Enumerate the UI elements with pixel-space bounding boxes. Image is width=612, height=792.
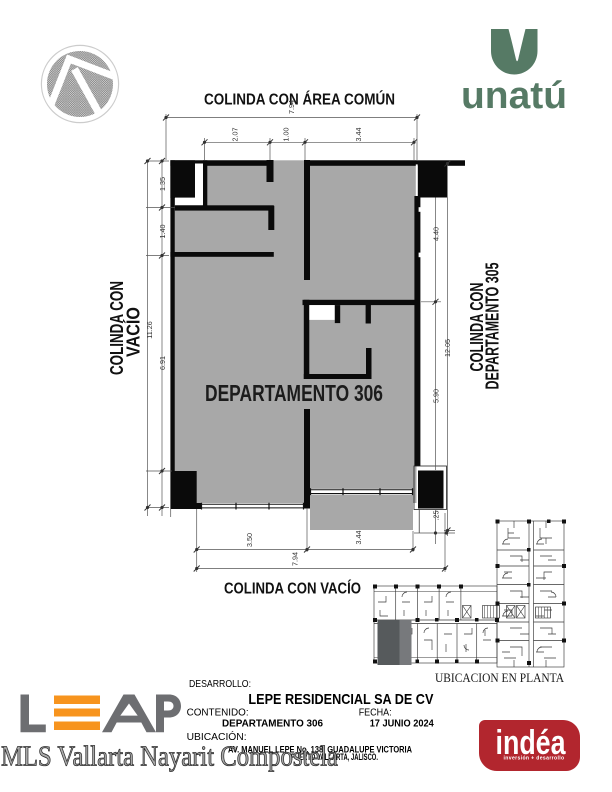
svg-text:CONTENIDO:: CONTENIDO: <box>187 708 249 719</box>
svg-text:6.91: 6.91 <box>158 356 167 370</box>
svg-text:2.07: 2.07 <box>231 128 240 142</box>
svg-text:4.40: 4.40 <box>432 227 441 241</box>
svg-text:MLS Vallarta Nayarit Compostel: MLS Vallarta Nayarit Compostela <box>1 741 338 773</box>
svg-text:7.94: 7.94 <box>291 552 300 566</box>
svg-text:1.40: 1.40 <box>158 225 167 239</box>
svg-text:DEPARTAMENTO 305: DEPARTAMENTO 305 <box>482 263 503 390</box>
svg-text:DEPARTAMENTO 306: DEPARTAMENTO 306 <box>222 719 323 730</box>
svg-text:1.00: 1.00 <box>282 128 291 142</box>
svg-text:COLINDA CON VACÍO: COLINDA CON VACÍO <box>224 579 361 598</box>
svg-text:5.90: 5.90 <box>432 389 441 403</box>
svg-text:COLINDA CON ÁREA COMÚN: COLINDA CON ÁREA COMÚN <box>204 90 395 109</box>
svg-text:UBICACION EN PLANTA: UBICACION EN PLANTA <box>435 671 564 685</box>
svg-text:inversión + desarrollo: inversión + desarrollo <box>504 756 565 762</box>
svg-text:1.35: 1.35 <box>158 177 167 191</box>
svg-text:DESARROLLO:: DESARROLLO: <box>189 679 251 690</box>
svg-text:11.26: 11.26 <box>145 321 154 338</box>
svg-text:3.50: 3.50 <box>245 533 254 547</box>
svg-text:VACÍO: VACÍO <box>123 307 144 357</box>
svg-text:DEPARTAMENTO 306: DEPARTAMENTO 306 <box>205 380 383 406</box>
svg-text:12.05: 12.05 <box>443 339 452 357</box>
svg-text:3.44: 3.44 <box>354 531 363 545</box>
svg-text:unatú: unatú <box>461 75 567 117</box>
svg-text:3.44: 3.44 <box>354 128 363 142</box>
svg-text:FECHA:: FECHA: <box>359 708 392 719</box>
svg-text:.25: .25 <box>432 511 441 521</box>
svg-text:LEPE RESIDENCIAL SA DE CV: LEPE RESIDENCIAL SA DE CV <box>248 691 433 708</box>
svg-text:7.94: 7.94 <box>287 100 296 114</box>
svg-text:17 JUNIO 2024: 17 JUNIO 2024 <box>370 719 434 730</box>
